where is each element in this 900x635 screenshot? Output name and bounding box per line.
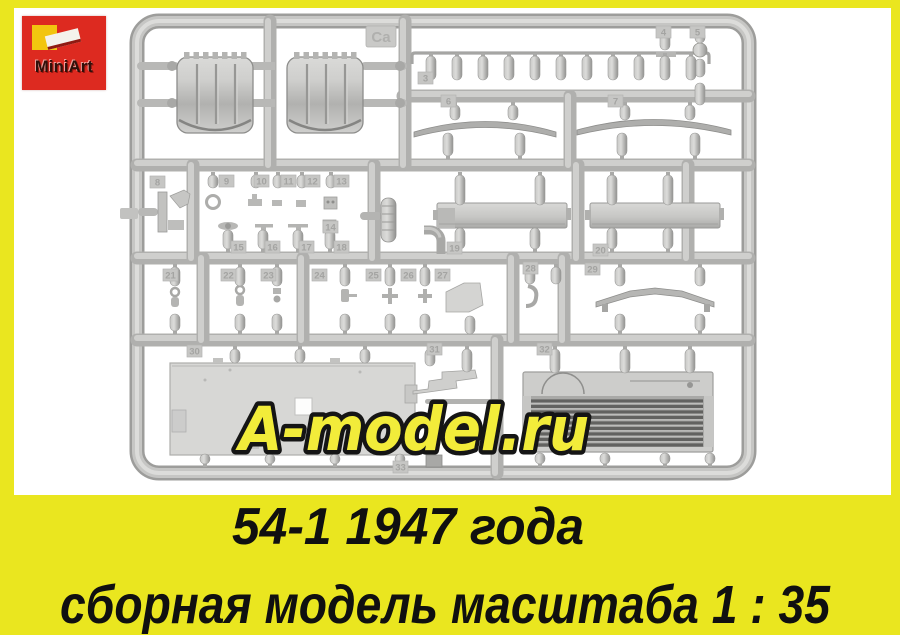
part-number-tag: 20 bbox=[595, 246, 606, 257]
caption-subtitle: сборная модель масштаба 1 : 35 bbox=[60, 575, 831, 635]
photo-panel: Ca 3456789101112131415161718192021222324… bbox=[14, 8, 891, 495]
part-number-tag: 16 bbox=[267, 243, 278, 254]
part-number-tag: 21 bbox=[165, 271, 176, 282]
part-number-tag: 12 bbox=[307, 177, 318, 188]
part-number-tag: 18 bbox=[336, 243, 347, 254]
part-number-tag: 24 bbox=[314, 271, 325, 282]
miniart-logo: MiniArt bbox=[22, 16, 106, 90]
part-number-tag: 11 bbox=[283, 177, 294, 188]
row2-fittings bbox=[138, 190, 441, 254]
part-number-tag: 32 bbox=[539, 345, 550, 356]
gate-letter-text: Ca bbox=[371, 29, 391, 46]
part-number-tag: 25 bbox=[368, 271, 379, 282]
part-number-tag: 7 bbox=[613, 97, 618, 108]
logo-brand-text: MiniArt bbox=[22, 58, 106, 77]
part-number-tag: 28 bbox=[525, 264, 536, 275]
part-number-tag: 33 bbox=[395, 463, 406, 474]
part-number-tag: 6 bbox=[446, 97, 451, 108]
caption-band: 54-1 1947 года сборная модель масштаба 1… bbox=[0, 495, 900, 635]
part-number-tag: 22 bbox=[223, 271, 234, 282]
part-number-tag: 23 bbox=[263, 271, 274, 282]
bracket-and-rod-parts bbox=[413, 370, 502, 467]
part-number-tag: 5 bbox=[695, 28, 701, 39]
row3-fittings bbox=[171, 283, 714, 334]
part-number-tag: 29 bbox=[587, 265, 598, 276]
part-number-tag: 30 bbox=[189, 347, 200, 358]
engine-grille-part bbox=[523, 372, 713, 452]
caption-title: 54-1 1947 года bbox=[232, 498, 584, 556]
part-number-tag: 31 bbox=[429, 345, 440, 356]
roof-panel-part bbox=[170, 358, 417, 455]
part-number-tag: 26 bbox=[403, 271, 414, 282]
part-number-tag: 15 bbox=[233, 243, 244, 254]
part-number-tag: 17 bbox=[301, 243, 312, 254]
part-number-tag: 13 bbox=[336, 177, 347, 188]
part-number-tag: 4 bbox=[661, 28, 667, 39]
part-number-tag: 10 bbox=[256, 177, 267, 188]
part-number-tag: 27 bbox=[437, 271, 448, 282]
part-number-tag: 3 bbox=[423, 74, 428, 85]
part-number-tag: 19 bbox=[449, 244, 460, 255]
sprue-photo: Ca 3456789101112131415161718192021222324… bbox=[14, 8, 891, 495]
gate-letter-tag: Ca bbox=[366, 26, 396, 47]
part-number-tag: 9 bbox=[224, 177, 229, 188]
part-number-tag: 8 bbox=[155, 178, 160, 189]
product-image: Ca 3456789101112131415161718192021222324… bbox=[0, 0, 900, 635]
part-number-tag: 14 bbox=[325, 223, 336, 234]
